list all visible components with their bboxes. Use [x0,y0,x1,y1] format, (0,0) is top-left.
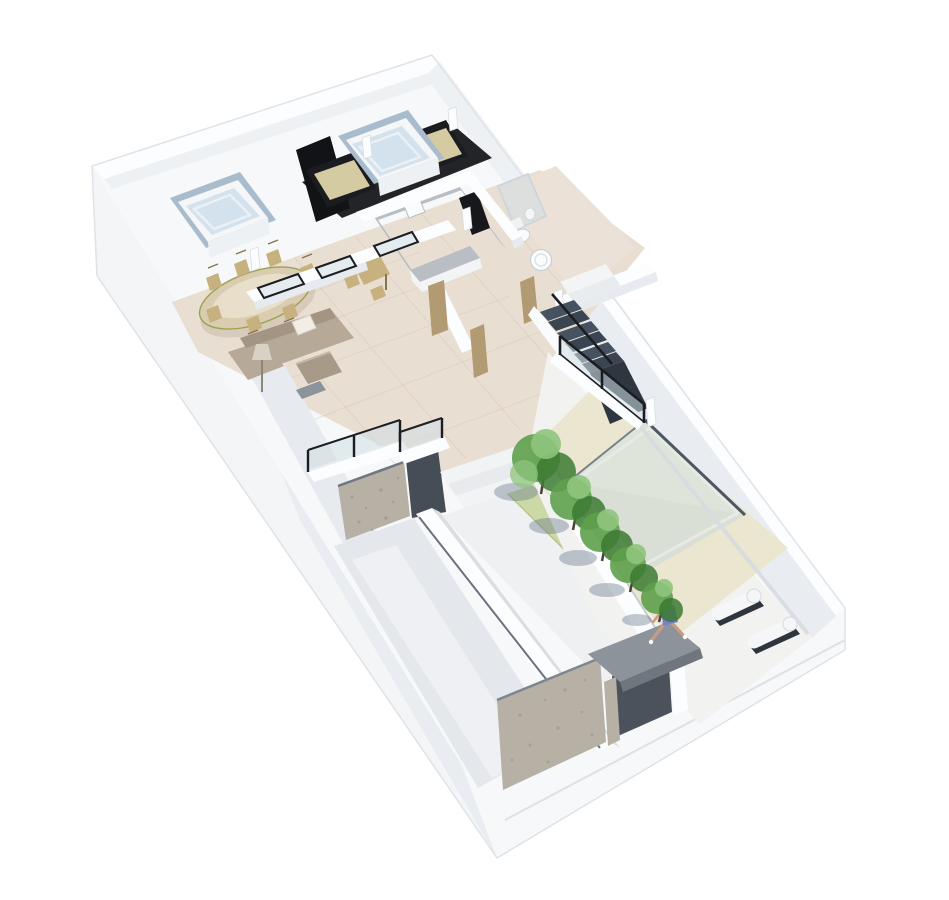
speckle [384,516,387,519]
speckle [584,679,587,682]
floor-plan-render [0,0,949,900]
lounger-headrest [783,617,797,631]
lounger-headrest [747,589,761,603]
foliage [531,429,561,459]
woman-shoe [649,640,653,644]
foliage [626,544,646,564]
speckle [358,521,361,524]
speckle [365,507,367,509]
foliage [655,579,673,597]
round-basin [531,250,552,271]
speckle [350,495,353,498]
column [250,247,260,271]
speckle [528,743,531,746]
foliage [597,509,619,531]
speckle [563,688,566,691]
tree-shadow [559,550,597,566]
speckle [379,488,383,492]
speckle [547,761,550,764]
tree-shadow [529,518,569,534]
foliage [659,598,683,622]
column [448,107,458,131]
foliage [510,460,538,488]
speckle [371,529,373,531]
column [362,135,372,159]
speckle [511,759,514,762]
column [462,207,472,231]
tree-shadow [622,614,652,626]
speckle [590,733,593,736]
trash-cylinder [525,208,535,220]
speckle [544,699,547,702]
speckle [392,501,395,504]
woman-shoe [683,635,687,639]
speckle [581,711,584,714]
balustrade-end-cap [646,397,656,427]
tree-shadow [589,583,625,597]
speckle [556,726,560,730]
speckle [397,477,400,480]
foliage [567,475,591,499]
speckle [518,713,522,717]
scene-canvas [0,0,949,900]
